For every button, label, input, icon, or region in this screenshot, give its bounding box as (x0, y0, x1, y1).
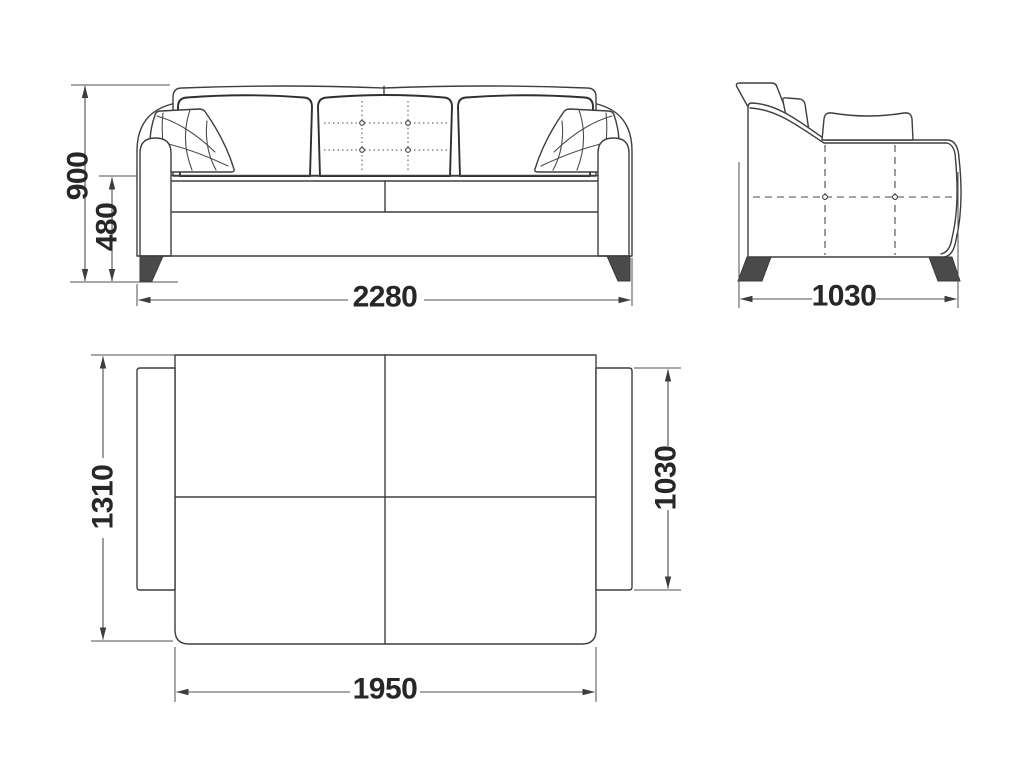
dim-label-plan-depth: 1030 (650, 446, 683, 511)
leg-front-left (140, 256, 163, 281)
tufting-button (406, 148, 411, 153)
leg-side-front (929, 257, 960, 281)
plan-view: 1310 1030 1950 (87, 355, 683, 706)
dimension-inner-width: 1950 (175, 647, 596, 706)
dimension-seat-height: 480 (91, 176, 138, 281)
front-view: 900 480 2280 (62, 85, 633, 314)
dim-label-side-depth: 1030 (812, 280, 877, 313)
arm-right-roll (598, 138, 629, 256)
leg-side-back (738, 257, 771, 281)
side-back-cushion (822, 113, 913, 140)
technical-drawing-canvas: 900 480 2280 (0, 0, 1024, 768)
leg-front-right (607, 256, 630, 281)
plan-arm-left (137, 368, 175, 590)
drawing-sheet: 900 480 2280 (0, 0, 1024, 768)
dimension-overall-width: 2280 (137, 258, 632, 314)
arm-left-roll (140, 138, 171, 256)
plan-arm-right (596, 368, 632, 590)
side-view: 1030 (736, 83, 961, 313)
tufting-button (360, 121, 365, 126)
dim-label-front-width: 2280 (353, 281, 418, 314)
seam-button (893, 195, 898, 200)
back-cushion-middle (318, 95, 452, 176)
dim-label-front-height: 900 (62, 152, 95, 201)
dim-label-unfolded-length: 1310 (87, 465, 120, 530)
dim-label-seat-height: 480 (91, 203, 124, 252)
seam-button (823, 195, 828, 200)
dimension-plan-depth: 1030 (634, 368, 683, 590)
dim-label-inner-width: 1950 (353, 673, 418, 706)
tufting-button (406, 121, 411, 126)
tufting-button (360, 148, 365, 153)
